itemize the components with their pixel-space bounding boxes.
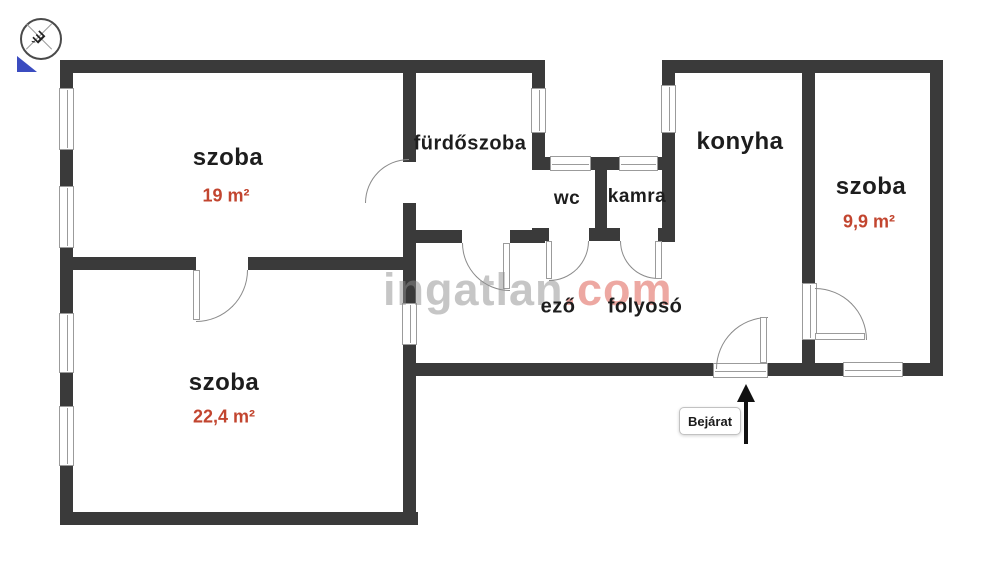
door-arc xyxy=(196,270,248,322)
wall-segment xyxy=(802,340,815,363)
room-label-szoba-right: szoba xyxy=(836,173,907,201)
window-symbol xyxy=(550,156,591,171)
room-area-szoba-right: 9,9 m² xyxy=(843,212,895,233)
entrance-door-leaf xyxy=(760,317,767,363)
room-label-konyha: konyha xyxy=(696,128,783,156)
watermark-gray-text: ingatlan xyxy=(383,264,564,315)
door-leaf xyxy=(193,270,200,320)
floor-plan: ingatlan.com szoba 19 m² szoba 22,4 m² f… xyxy=(0,0,1000,581)
wall-segment xyxy=(60,512,418,525)
room-area-szoba-bottom-left: 22,4 m² xyxy=(193,407,255,428)
room-label-furdoszoba: fürdőszoba xyxy=(414,133,527,156)
door-leaf xyxy=(815,333,865,340)
wall-segment xyxy=(60,257,196,270)
entrance-label: Bejárat xyxy=(679,407,741,435)
wall-segment xyxy=(930,60,943,376)
room-label-szoba-bottom-left: szoba xyxy=(189,369,260,397)
compass-north-letter: É xyxy=(12,10,66,64)
room-area-szoba-top-left: 19 m² xyxy=(202,186,249,207)
window-symbol xyxy=(661,85,676,133)
room-label-wc: wc xyxy=(554,188,580,210)
entrance-arrow-head xyxy=(737,384,755,402)
window-symbol xyxy=(59,88,74,150)
wall-segment xyxy=(532,228,549,241)
wall-segment xyxy=(903,363,943,376)
window-symbol xyxy=(531,88,546,133)
compass-icon: É xyxy=(12,14,66,70)
window-symbol xyxy=(59,313,74,373)
door-opening xyxy=(196,257,248,270)
entrance-arrow xyxy=(744,400,748,444)
door-opening xyxy=(549,228,589,241)
room-label-szoba-top-left: szoba xyxy=(193,144,264,172)
wall-segment xyxy=(60,60,545,73)
wall-segment xyxy=(768,363,843,376)
wall-segment xyxy=(802,73,815,283)
room-label-ezo-partial: ező xyxy=(541,296,576,319)
wall-segment xyxy=(589,228,620,241)
window-symbol xyxy=(843,362,903,377)
window-symbol xyxy=(59,406,74,466)
door-opening xyxy=(462,230,510,243)
room-label-kamra: kamra xyxy=(608,186,667,208)
door-opening xyxy=(620,228,658,241)
door-arc xyxy=(365,159,409,203)
room-label-folyoso: folyosó xyxy=(608,296,683,319)
window-symbol xyxy=(619,156,658,171)
wall-segment xyxy=(403,363,713,376)
wall-segment xyxy=(60,270,73,525)
wall-segment xyxy=(662,60,943,73)
window-symbol xyxy=(59,186,74,248)
wall-segment xyxy=(416,230,462,243)
